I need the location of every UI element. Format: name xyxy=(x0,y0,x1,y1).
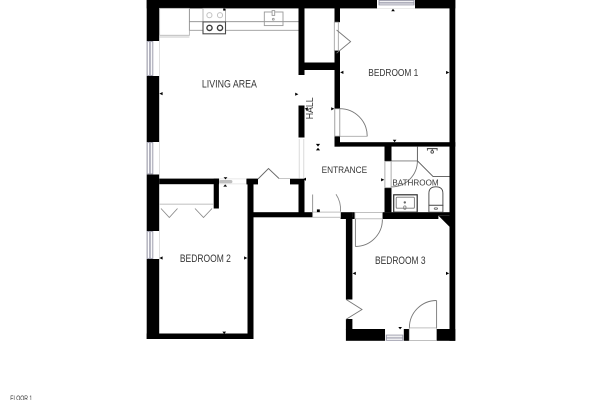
svg-text:BEDROOM 2: BEDROOM 2 xyxy=(180,253,231,265)
svg-text:BEDROOM 1: BEDROOM 1 xyxy=(368,68,418,79)
svg-text:ENTRANCE: ENTRANCE xyxy=(322,165,368,176)
svg-text:FLOOR 1: FLOOR 1 xyxy=(10,393,32,400)
svg-text:HALL: HALL xyxy=(304,97,316,119)
svg-text:BEDROOM 3: BEDROOM 3 xyxy=(375,255,426,267)
svg-text:LIVING AREA: LIVING AREA xyxy=(202,79,258,91)
svg-text:BATHROOM: BATHROOM xyxy=(392,177,438,187)
